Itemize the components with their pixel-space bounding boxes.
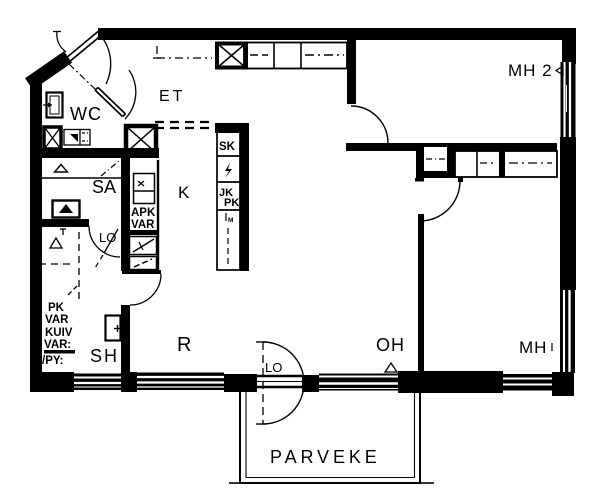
svg-text:ET: ET [159,88,185,105]
svg-text:SA: SA [92,177,116,197]
svg-text:/PY:: /PY: [42,355,64,367]
svg-text:LO: LO [265,360,282,375]
svg-text:VAR: VAR [45,314,69,326]
svg-text:MH: MH [519,338,547,357]
svg-text:MH 2: MH 2 [508,61,553,80]
svg-text:VAR: VAR [131,219,155,231]
svg-text:PK: PK [48,302,65,314]
svg-text:R: R [177,334,191,356]
svg-text:WC: WC [70,104,102,124]
svg-text:LO: LO [99,230,116,245]
svg-text:K: K [178,183,190,202]
svg-text:M: M [228,217,233,224]
svg-text:SK: SK [219,141,236,153]
svg-text:VAR:: VAR: [44,339,71,351]
svg-text:OH: OH [376,335,405,355]
svg-text:PK: PK [224,197,239,209]
svg-text:SH: SH [90,346,119,366]
svg-text:APK: APK [131,207,156,219]
svg-text:PARVEKE: PARVEKE [270,447,381,467]
svg-text:KUIV: KUIV [45,327,73,339]
